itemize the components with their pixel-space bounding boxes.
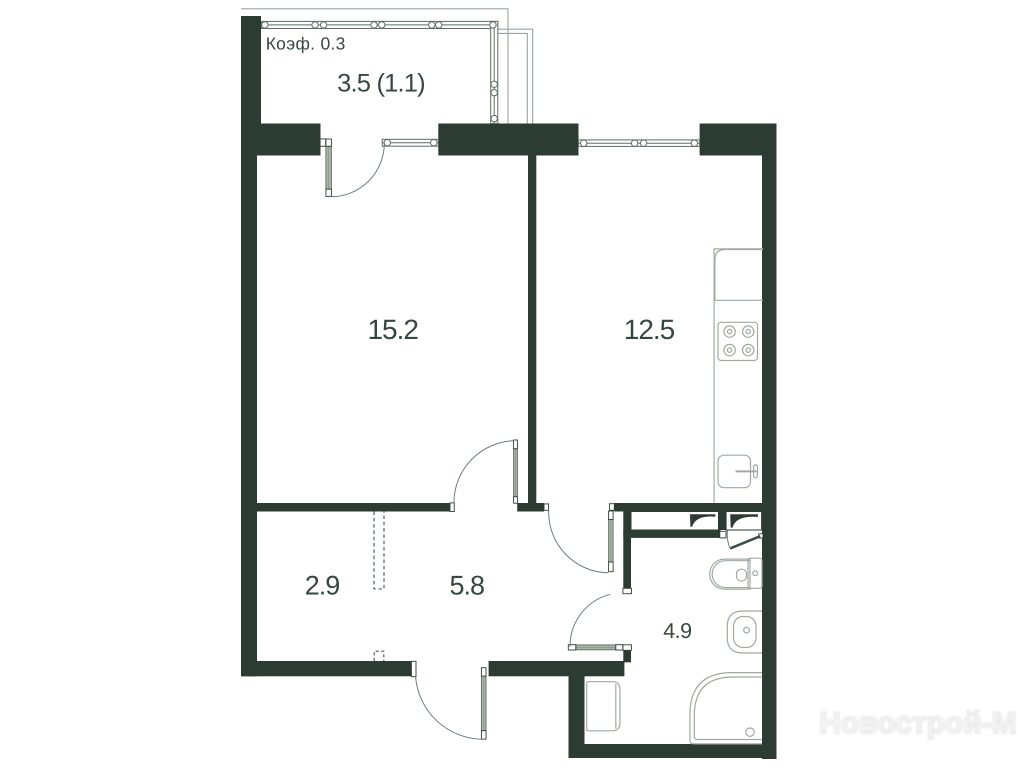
- svg-text:2.9: 2.9: [305, 570, 340, 600]
- svg-text:4.9: 4.9: [663, 619, 691, 643]
- svg-text:Новострой-М: Новострой-М: [819, 707, 1016, 740]
- svg-text:3.5 (1.1): 3.5 (1.1): [337, 69, 425, 97]
- svg-text:12.5: 12.5: [624, 314, 675, 345]
- svg-text:15.2: 15.2: [367, 314, 418, 345]
- svg-text:5.8: 5.8: [450, 570, 485, 600]
- svg-text:Коэф. 0.3: Коэф. 0.3: [266, 34, 346, 54]
